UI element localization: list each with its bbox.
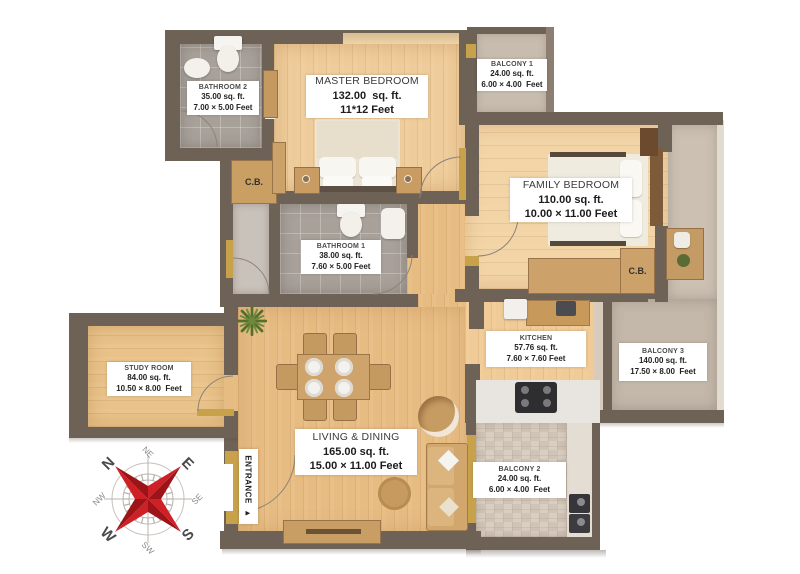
- svg-text:S: S: [179, 525, 198, 544]
- svg-text:SW: SW: [140, 540, 157, 557]
- svg-text:W: W: [97, 524, 120, 547]
- svg-text:NE: NE: [140, 444, 156, 460]
- svg-text:NW: NW: [90, 490, 107, 507]
- svg-text:E: E: [178, 454, 197, 473]
- svg-text:SE: SE: [189, 491, 204, 506]
- svg-text:N: N: [99, 454, 119, 474]
